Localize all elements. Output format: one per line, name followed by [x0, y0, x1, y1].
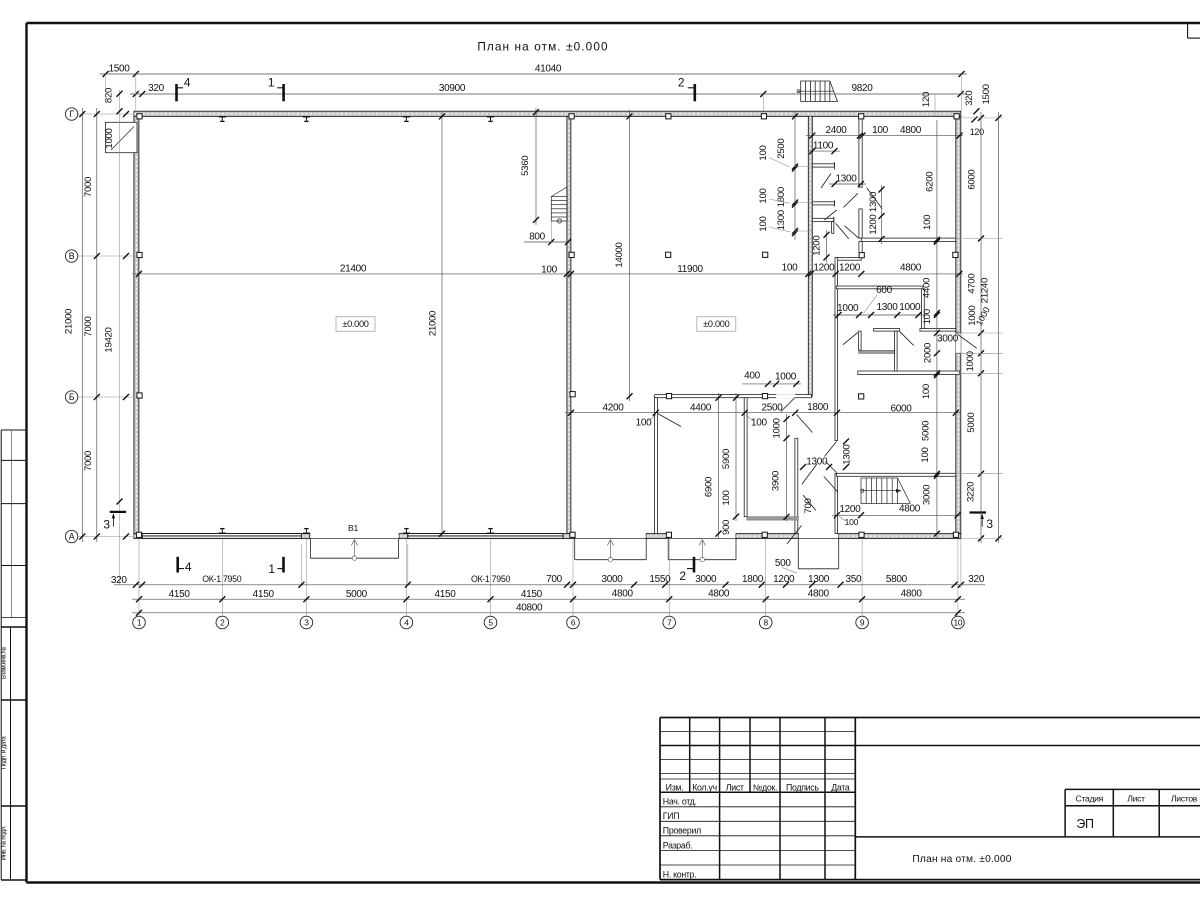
svg-text:900: 900	[721, 520, 732, 535]
svg-text:6900: 6900	[704, 477, 715, 497]
svg-text:1200: 1200	[813, 262, 835, 273]
svg-text:4: 4	[184, 76, 191, 90]
svg-text:100: 100	[758, 216, 769, 231]
svg-text:3220: 3220	[965, 482, 976, 502]
svg-text:2000: 2000	[922, 343, 933, 363]
svg-text:320: 320	[964, 91, 975, 106]
svg-text:100: 100	[751, 417, 768, 428]
svg-text:Лист: Лист	[1127, 794, 1145, 804]
svg-text:100: 100	[541, 264, 558, 275]
svg-text:100: 100	[758, 145, 769, 160]
svg-text:120: 120	[921, 92, 932, 107]
svg-text:21000: 21000	[427, 311, 438, 336]
svg-text:4200: 4200	[602, 402, 624, 413]
svg-text:9820: 9820	[851, 83, 873, 94]
svg-text:План на отм. ±0.000: План на отм. ±0.000	[912, 854, 1011, 865]
svg-text:3: 3	[986, 517, 993, 531]
svg-text:5000: 5000	[346, 589, 368, 600]
svg-text:±0.000: ±0.000	[342, 319, 368, 329]
svg-text:7000: 7000	[83, 451, 94, 471]
svg-text:320: 320	[968, 574, 985, 585]
svg-text:120: 120	[970, 127, 984, 137]
svg-text:Разраб.: Разраб.	[663, 840, 693, 850]
svg-text:1300: 1300	[808, 574, 830, 585]
svg-text:Стадия: Стадия	[1076, 794, 1104, 804]
svg-text:4400: 4400	[922, 278, 933, 298]
svg-text:320: 320	[111, 575, 128, 586]
svg-text:№док.: №док.	[753, 783, 777, 793]
svg-text:5900: 5900	[721, 449, 732, 469]
svg-text:1000: 1000	[775, 371, 797, 382]
svg-text:1: 1	[268, 562, 275, 576]
svg-text:2: 2	[679, 569, 686, 583]
svg-text:1300: 1300	[806, 456, 828, 467]
svg-text:3000: 3000	[601, 574, 623, 585]
svg-text:1500: 1500	[108, 64, 130, 75]
svg-text:14000: 14000	[614, 242, 625, 267]
svg-text:21240: 21240	[979, 278, 990, 303]
svg-text:В1: В1	[348, 523, 358, 533]
svg-text:4800: 4800	[899, 503, 921, 514]
svg-text:100: 100	[636, 417, 653, 428]
svg-text:3900: 3900	[770, 471, 781, 491]
svg-text:6200: 6200	[924, 172, 935, 192]
svg-text:9: 9	[860, 618, 865, 628]
svg-text:Б: Б	[69, 392, 75, 402]
svg-text:350: 350	[846, 574, 863, 585]
svg-text:1000: 1000	[965, 351, 976, 371]
svg-text:41040: 41040	[535, 64, 562, 75]
svg-text:1200: 1200	[868, 215, 879, 235]
svg-text:1300: 1300	[776, 210, 787, 230]
svg-text:7000: 7000	[83, 177, 94, 197]
svg-text:Кол.уч: Кол.уч	[692, 783, 717, 793]
svg-text:Взам.инв.№: Взам.инв.№	[1, 646, 8, 679]
svg-text:21400: 21400	[340, 263, 367, 274]
svg-text:Подп. и дата: Подп. и дата	[1, 736, 8, 770]
svg-text:±0.000: ±0.000	[703, 319, 729, 329]
svg-text:4150: 4150	[169, 589, 191, 600]
svg-text:4800: 4800	[612, 589, 634, 600]
svg-text:1100: 1100	[813, 141, 834, 152]
svg-text:2500: 2500	[776, 139, 787, 159]
svg-text:1300: 1300	[842, 445, 853, 465]
svg-text:100: 100	[920, 447, 931, 462]
svg-text:600: 600	[876, 285, 893, 296]
svg-text:Инв. № подл.: Инв. № подл.	[1, 825, 8, 861]
svg-text:100: 100	[721, 490, 732, 505]
svg-text:3000: 3000	[921, 485, 932, 505]
svg-text:40800: 40800	[516, 603, 543, 614]
svg-text:4800: 4800	[901, 589, 923, 600]
svg-text:1: 1	[137, 618, 142, 628]
svg-text:1550: 1550	[649, 574, 671, 585]
svg-text:4700: 4700	[967, 274, 978, 294]
svg-text:ГИП: ГИП	[663, 811, 680, 821]
svg-text:10: 10	[954, 618, 963, 628]
svg-text:6000: 6000	[890, 403, 912, 414]
svg-text:820: 820	[104, 88, 115, 103]
svg-text:4150: 4150	[434, 589, 456, 600]
svg-text:В: В	[69, 251, 75, 261]
svg-text:ОК-1 7950: ОК-1 7950	[471, 574, 511, 584]
svg-text:30900: 30900	[439, 83, 466, 94]
svg-text:Нач. отд.: Нач. отд.	[663, 797, 697, 807]
svg-text:100: 100	[758, 188, 769, 203]
svg-text:1800: 1800	[742, 574, 764, 585]
svg-text:4: 4	[404, 618, 409, 628]
svg-text:5000: 5000	[920, 421, 931, 441]
svg-text:500: 500	[775, 558, 792, 569]
svg-text:5000: 5000	[966, 413, 977, 433]
svg-text:100: 100	[845, 517, 859, 527]
svg-text:3: 3	[103, 518, 110, 532]
svg-text:6: 6	[571, 618, 576, 628]
svg-text:4400: 4400	[690, 402, 712, 413]
svg-text:План на отм. ±0.000: План на отм. ±0.000	[477, 40, 608, 54]
svg-text:700: 700	[546, 574, 563, 585]
svg-text:Подпись: Подпись	[786, 783, 819, 793]
svg-text:19420: 19420	[104, 327, 115, 352]
svg-text:Н. контр.: Н. контр.	[663, 870, 697, 880]
svg-text:1200: 1200	[773, 574, 795, 585]
svg-text:Изм.: Изм.	[666, 783, 684, 793]
svg-text:7000: 7000	[83, 316, 94, 336]
svg-text:5: 5	[488, 618, 493, 628]
svg-text:1200: 1200	[839, 262, 861, 273]
svg-text:1000: 1000	[899, 302, 921, 313]
svg-text:4150: 4150	[253, 589, 275, 600]
svg-text:2: 2	[678, 76, 685, 90]
svg-text:1000: 1000	[837, 303, 859, 314]
svg-text:2500: 2500	[761, 402, 783, 413]
svg-text:4800: 4800	[708, 589, 730, 600]
svg-text:1200: 1200	[839, 504, 861, 515]
svg-text:2400: 2400	[825, 125, 847, 136]
svg-text:800: 800	[529, 231, 546, 242]
svg-text:1000: 1000	[772, 418, 783, 438]
svg-text:1800: 1800	[776, 187, 787, 207]
svg-text:100: 100	[922, 309, 933, 324]
svg-text:5800: 5800	[886, 574, 908, 585]
svg-text:1800: 1800	[807, 402, 829, 413]
svg-text:ЭП: ЭП	[1076, 817, 1093, 831]
svg-text:4: 4	[185, 560, 192, 574]
svg-text:4800: 4800	[900, 125, 922, 136]
svg-text:320: 320	[148, 83, 165, 94]
svg-text:1: 1	[268, 76, 275, 90]
svg-text:6000: 6000	[967, 170, 978, 190]
svg-text:3000: 3000	[695, 574, 717, 585]
svg-text:А: А	[69, 532, 75, 542]
svg-text:4150: 4150	[521, 589, 543, 600]
svg-text:5360: 5360	[520, 156, 531, 176]
svg-text:400: 400	[744, 370, 761, 381]
svg-text:4800: 4800	[900, 262, 922, 273]
svg-text:3: 3	[304, 618, 309, 628]
svg-text:1300: 1300	[876, 302, 898, 313]
svg-text:ОК-1 7950: ОК-1 7950	[202, 574, 242, 584]
svg-text:7: 7	[667, 618, 672, 628]
svg-text:1500: 1500	[981, 84, 992, 104]
svg-text:1200: 1200	[812, 236, 823, 256]
svg-text:3000: 3000	[937, 333, 959, 344]
svg-text:8: 8	[764, 618, 769, 628]
svg-text:4800: 4800	[808, 589, 830, 600]
svg-text:100: 100	[782, 262, 799, 273]
svg-text:Проверил: Проверил	[663, 826, 701, 836]
svg-text:Листов: Листов	[1171, 794, 1198, 804]
svg-text:1300: 1300	[835, 173, 857, 184]
svg-text:11900: 11900	[677, 264, 703, 275]
svg-text:Дата: Дата	[831, 783, 850, 793]
svg-text:100: 100	[872, 125, 889, 136]
svg-text:100: 100	[921, 384, 932, 399]
svg-text:Лист: Лист	[726, 783, 744, 793]
svg-text:100: 100	[922, 215, 933, 230]
svg-text:21000: 21000	[64, 309, 75, 334]
svg-text:Г: Г	[69, 109, 74, 119]
svg-text:2: 2	[220, 618, 225, 628]
svg-text:1000: 1000	[104, 128, 115, 148]
